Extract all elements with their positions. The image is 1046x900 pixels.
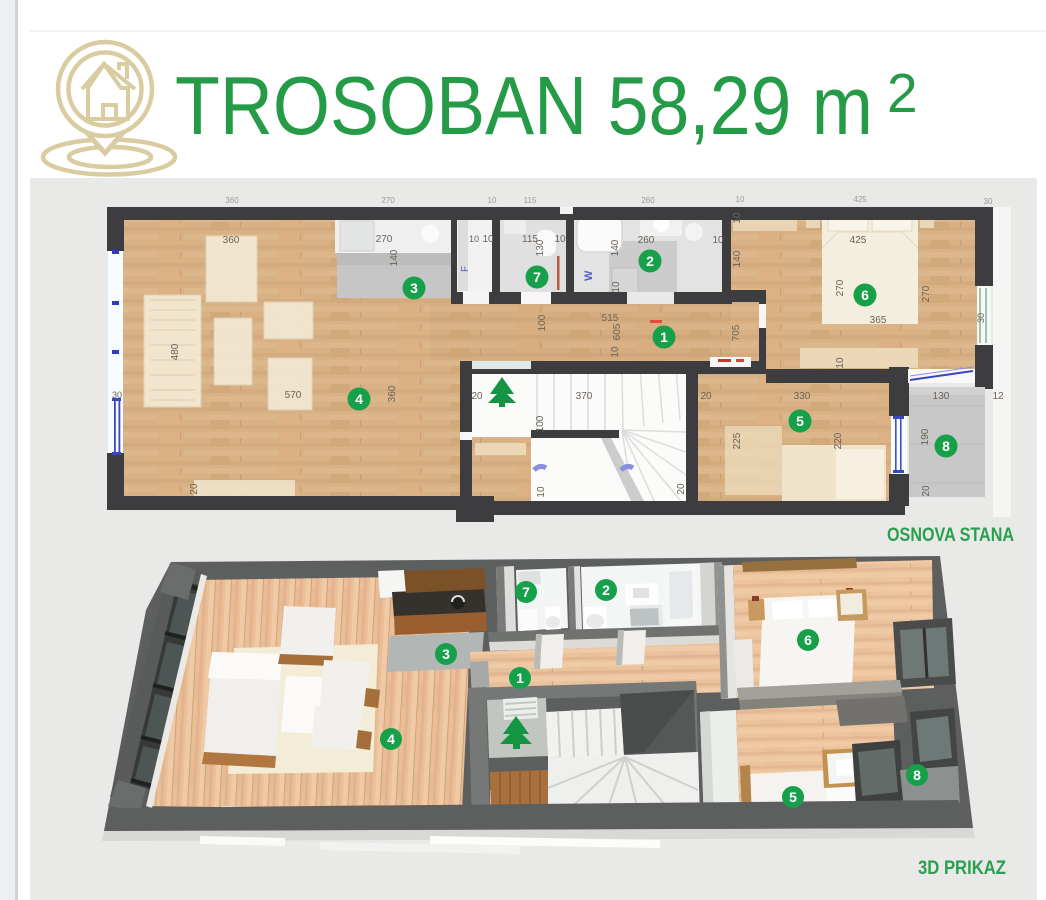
svg-text:115: 115 (524, 196, 537, 205)
svg-text:270: 270 (921, 285, 932, 302)
svg-text:W: W (583, 270, 595, 281)
svg-text:10: 10 (610, 346, 621, 358)
svg-text:425: 425 (850, 235, 867, 246)
svg-text:330: 330 (794, 391, 811, 402)
svg-text:365: 365 (870, 315, 887, 326)
svg-text:30: 30 (112, 390, 122, 400)
svg-text:1: 1 (660, 329, 668, 345)
svg-text:20: 20 (700, 391, 712, 402)
svg-text:130: 130 (933, 391, 950, 402)
svg-text:270: 270 (381, 196, 395, 205)
svg-text:12: 12 (992, 391, 1004, 402)
svg-text:10: 10 (536, 486, 547, 498)
svg-text:7: 7 (533, 269, 541, 285)
svg-text:2: 2 (602, 582, 610, 598)
svg-text:130: 130 (535, 239, 546, 256)
svg-text:10: 10 (482, 234, 494, 245)
svg-text:220: 220 (833, 432, 844, 449)
svg-text:6: 6 (861, 287, 869, 303)
svg-text:480: 480 (170, 343, 181, 360)
svg-text:3: 3 (410, 280, 418, 296)
svg-text:260: 260 (638, 235, 655, 246)
svg-text:TROSOBAN 58,29 m: TROSOBAN 58,29 m (175, 59, 873, 152)
svg-text:370: 370 (576, 391, 593, 402)
svg-text:605: 605 (612, 323, 623, 340)
svg-text:100: 100 (537, 314, 548, 331)
svg-text:10: 10 (611, 281, 622, 293)
svg-text:270: 270 (376, 234, 393, 245)
svg-text:30: 30 (984, 197, 993, 206)
svg-text:3: 3 (442, 646, 450, 662)
svg-text:OSNOVA STANA: OSNOVA STANA (887, 525, 1014, 546)
svg-text:1: 1 (516, 670, 524, 686)
svg-text:10: 10 (736, 195, 745, 204)
svg-text:20: 20 (189, 483, 200, 495)
svg-text:360: 360 (387, 385, 398, 402)
svg-text:8: 8 (942, 438, 950, 454)
svg-text:140: 140 (610, 239, 621, 256)
svg-text:10: 10 (554, 234, 566, 245)
svg-text:425: 425 (853, 195, 867, 204)
svg-text:F: F (460, 266, 471, 272)
svg-text:20: 20 (471, 391, 483, 402)
svg-text:20: 20 (921, 485, 932, 497)
svg-text:100: 100 (535, 415, 546, 432)
svg-text:20: 20 (676, 483, 687, 495)
svg-text:30: 30 (976, 313, 986, 323)
svg-text:10: 10 (469, 234, 479, 244)
svg-text:10: 10 (732, 212, 743, 224)
svg-text:5: 5 (796, 413, 804, 429)
svg-text:360: 360 (223, 235, 240, 246)
svg-text:360: 360 (225, 196, 239, 205)
svg-text:4: 4 (387, 731, 395, 747)
svg-text:190: 190 (920, 428, 931, 445)
svg-text:140: 140 (389, 249, 400, 266)
svg-text:6: 6 (804, 632, 812, 648)
svg-text:7: 7 (522, 584, 530, 600)
svg-text:705: 705 (731, 324, 742, 341)
svg-text:570: 570 (285, 390, 302, 401)
svg-text:270: 270 (835, 279, 846, 296)
svg-text:10: 10 (835, 357, 846, 369)
svg-text:225: 225 (732, 432, 743, 449)
svg-text:3D PRIKAZ: 3D PRIKAZ (918, 858, 1006, 879)
svg-text:4: 4 (355, 391, 363, 407)
svg-text:10: 10 (712, 235, 724, 246)
svg-text:260: 260 (641, 196, 655, 205)
svg-text:140: 140 (732, 250, 743, 267)
svg-text:2: 2 (646, 253, 654, 269)
svg-text:8: 8 (913, 767, 921, 783)
svg-text:2: 2 (887, 62, 918, 124)
svg-text:515: 515 (602, 313, 619, 324)
svg-text:5: 5 (789, 789, 797, 805)
svg-text:10: 10 (488, 196, 497, 205)
